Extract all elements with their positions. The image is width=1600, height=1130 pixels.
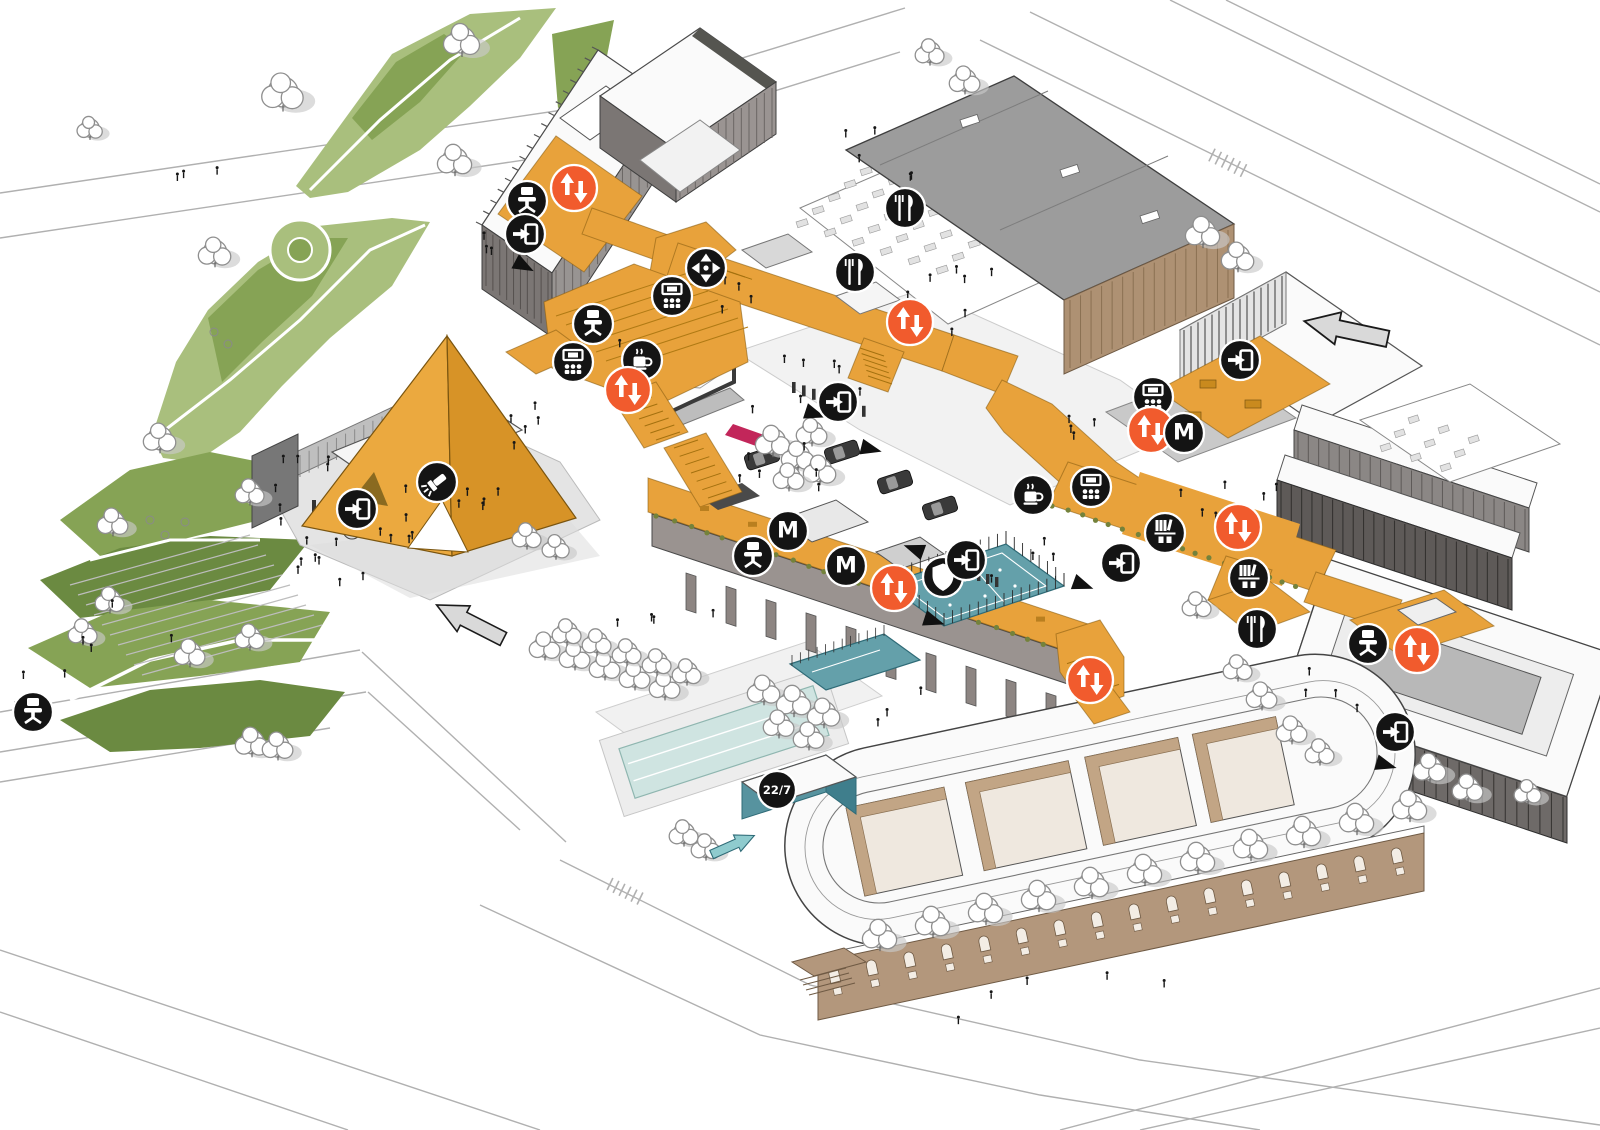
restaurant-icon (1237, 609, 1277, 649)
library-icon (1145, 513, 1185, 553)
elevator-icon (1394, 627, 1440, 673)
restaurant-icon (885, 188, 925, 228)
circulation-icon (686, 248, 726, 288)
hours-label: 22/7 (763, 783, 791, 797)
metro-icon: M (768, 511, 808, 551)
entrance-icon (818, 382, 858, 422)
elevator-icon (1215, 504, 1261, 550)
elevator-icon (605, 367, 651, 413)
parks-layer (28, 8, 614, 752)
workspace-icon (733, 536, 773, 576)
metro-label: M (777, 519, 799, 544)
masterplan-canvas: MMM22/7 (0, 0, 1600, 1130)
elevator-icon (887, 299, 933, 345)
entrance-icon (1101, 543, 1141, 583)
metro-icon: M (1164, 413, 1204, 453)
restaurant-icon (835, 252, 875, 292)
spotlight-icon (417, 462, 457, 502)
workspace-icon (1348, 624, 1388, 664)
entrance-icon (337, 489, 377, 529)
entrance-icon (505, 214, 545, 254)
metro-label: M (835, 554, 857, 579)
elevator-icon (551, 165, 597, 211)
entrance-icon (946, 540, 986, 580)
wayfinding-arrow-icon (859, 439, 883, 460)
entrance-icon (1220, 340, 1260, 380)
auditorium-icon (1071, 467, 1111, 507)
workspace-icon (573, 304, 613, 344)
library-icon (1229, 558, 1269, 598)
entry-arrow (430, 592, 510, 652)
hours-icon: 22/7 (758, 771, 796, 809)
auditorium-icon (553, 342, 593, 382)
entrance-icon (1375, 712, 1415, 752)
buildings-layer (252, 28, 1600, 1020)
auditorium-icon (652, 276, 692, 316)
cafe-icon (1013, 475, 1053, 515)
metro-label: M (1173, 421, 1195, 446)
metro-icon: M (826, 546, 866, 586)
workspace-icon (13, 692, 53, 732)
elevator-icon (1067, 657, 1113, 703)
elevator-icon (871, 565, 917, 611)
masterplan-svg: MMM22/7 (0, 0, 1600, 1130)
wayfinding-arrow-icon (1071, 574, 1096, 596)
